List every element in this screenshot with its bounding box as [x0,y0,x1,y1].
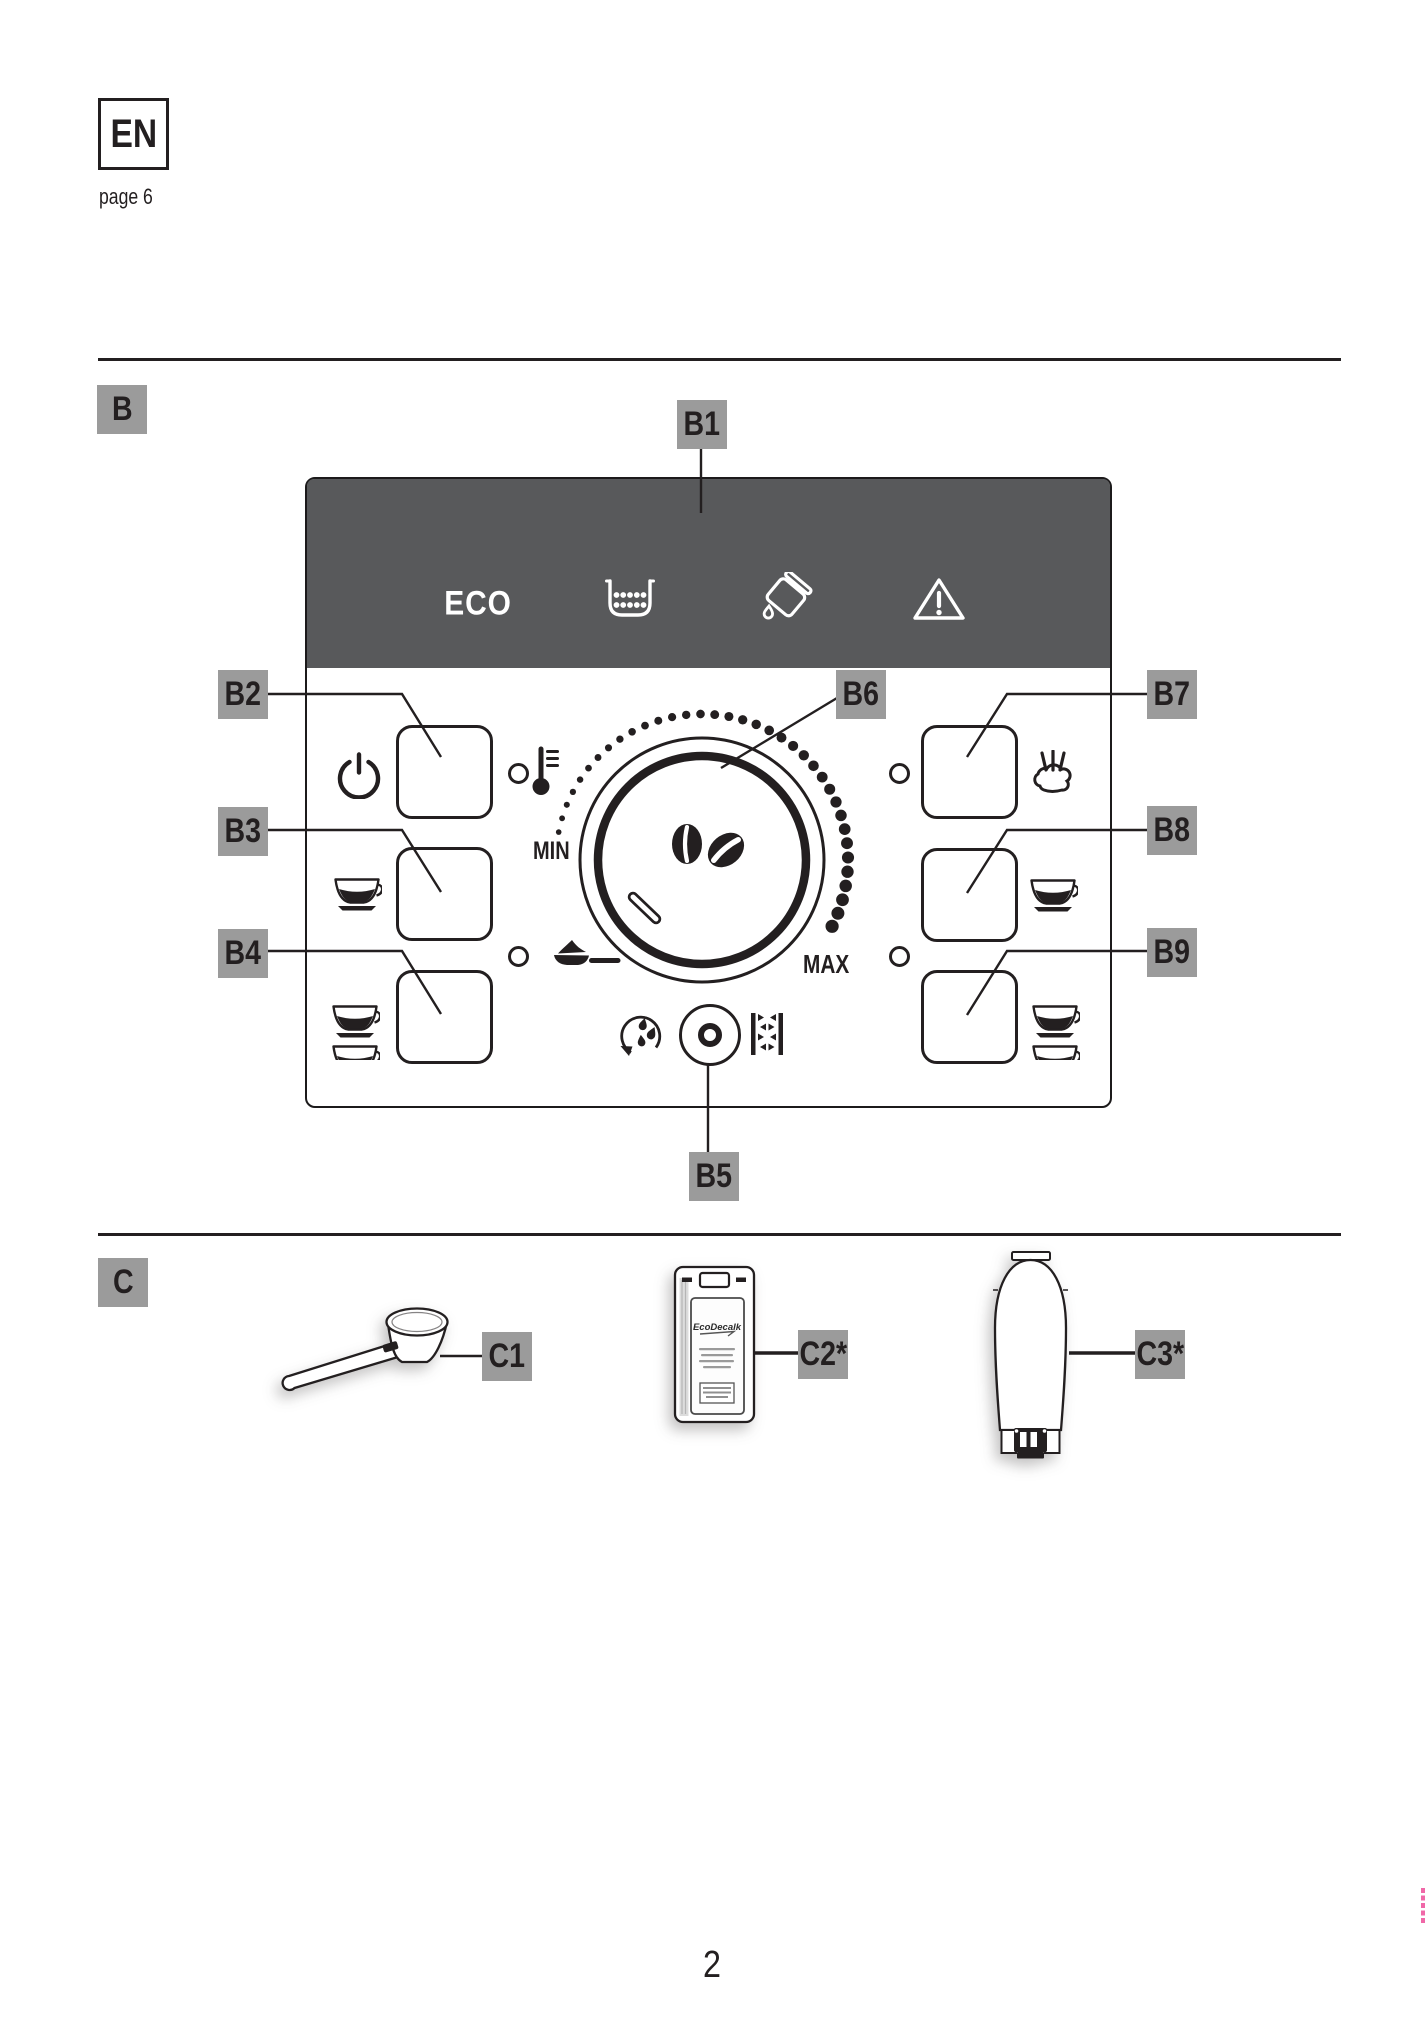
manual-page: EN page 6 B B1 B2 B3 B4 B5 B6 B7 B8 B9 E… [0,0,1428,2028]
section-c-divider [98,1233,1341,1236]
confirm-button-dot [698,1023,722,1047]
language-badge: EN [98,98,169,170]
warning-icon [912,576,966,622]
descaler-pack: EcoDecalk [670,1264,760,1426]
one-cup-icon [1028,877,1078,913]
grounds-container-icon [605,578,655,620]
print-registration-mark [1421,1888,1425,1923]
section-b-label: B [97,385,147,434]
eco-indicator: ECO [444,585,511,624]
two-cups-icon [330,982,380,1060]
dial-max-label: MAX [803,949,861,980]
section-b-divider [98,358,1341,361]
callout-b2: B2 [218,670,268,719]
two-cups-button [396,970,493,1064]
callout-c2: C2* [798,1330,848,1379]
callout-b3: B3 [218,807,268,856]
callout-b9: B9 [1147,928,1197,977]
two-long-cups-button [921,970,1018,1064]
power-icon [335,751,383,799]
language-badge-text: EN [110,112,157,157]
standby-button [396,725,493,819]
control-panel: ECO [305,477,1112,1108]
rinse-icon [618,1012,664,1058]
steam-led [889,763,910,784]
descale-icon [750,1010,784,1058]
callout-c1: C1 [482,1332,532,1381]
callout-b4: B4 [218,929,268,978]
display-strip: ECO [307,479,1110,668]
one-cup-icon [332,876,382,912]
dial-min-label: MIN [533,837,579,866]
pre-ground-led [508,946,529,967]
steam-icon [1030,750,1076,796]
one-long-cup-button [921,848,1018,942]
callout-b8: B8 [1147,806,1197,855]
two-cups-icon [1030,982,1080,1060]
alarm-led [889,946,910,967]
steam-button [921,725,1018,819]
callout-b5: B5 [689,1152,739,1201]
callout-c3: C3* [1135,1330,1185,1379]
measuring-scoop [263,1303,458,1398]
callout-b1: B1 [677,400,727,449]
page-number: 2 [703,1944,721,1987]
temperature-led [508,763,529,784]
page-reference: page 6 [99,184,166,210]
callout-b6: B6 [836,670,886,719]
one-cup-button [396,847,493,941]
water-softener-filter [985,1248,1080,1463]
callout-b7: B7 [1147,670,1197,719]
refill-water-icon [756,572,814,622]
water-drop [764,606,772,618]
section-c-label: C [98,1258,148,1307]
